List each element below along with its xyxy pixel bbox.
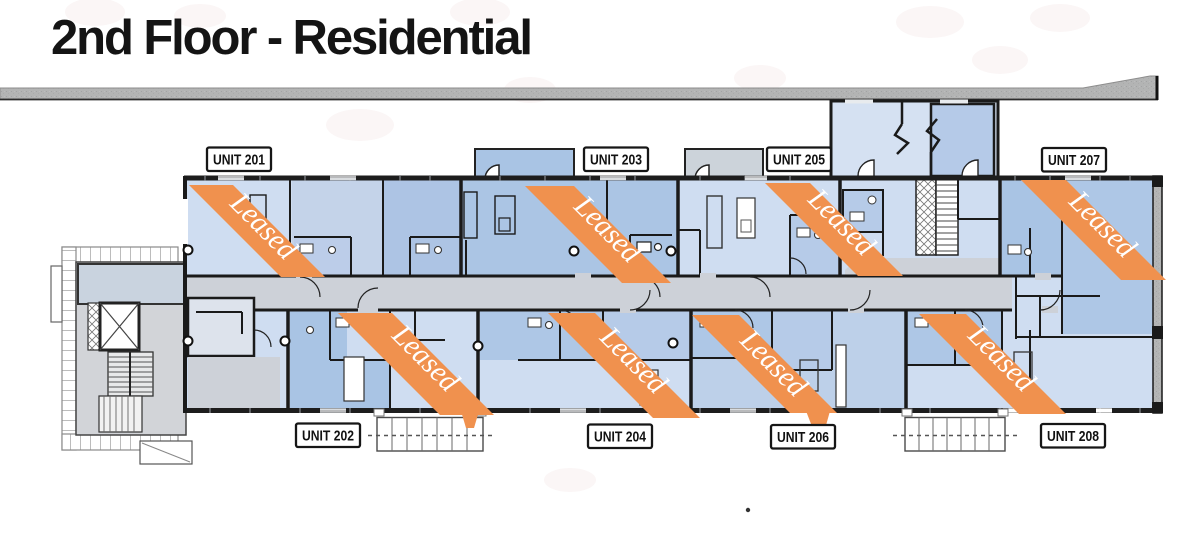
svg-text:UNIT 204: UNIT 204 (594, 429, 647, 446)
svg-text:UNIT 201: UNIT 201 (213, 152, 265, 169)
svg-text:UNIT 208: UNIT 208 (1047, 428, 1099, 445)
svg-text:UNIT 203: UNIT 203 (590, 152, 642, 169)
svg-text:UNIT 207: UNIT 207 (1048, 152, 1100, 169)
svg-text:UNIT 205: UNIT 205 (773, 152, 825, 169)
svg-text:UNIT 202: UNIT 202 (302, 428, 354, 445)
svg-text:UNIT 206: UNIT 206 (777, 429, 829, 446)
svg-text:2nd Floor - Residential: 2nd Floor - Residential (51, 11, 531, 65)
